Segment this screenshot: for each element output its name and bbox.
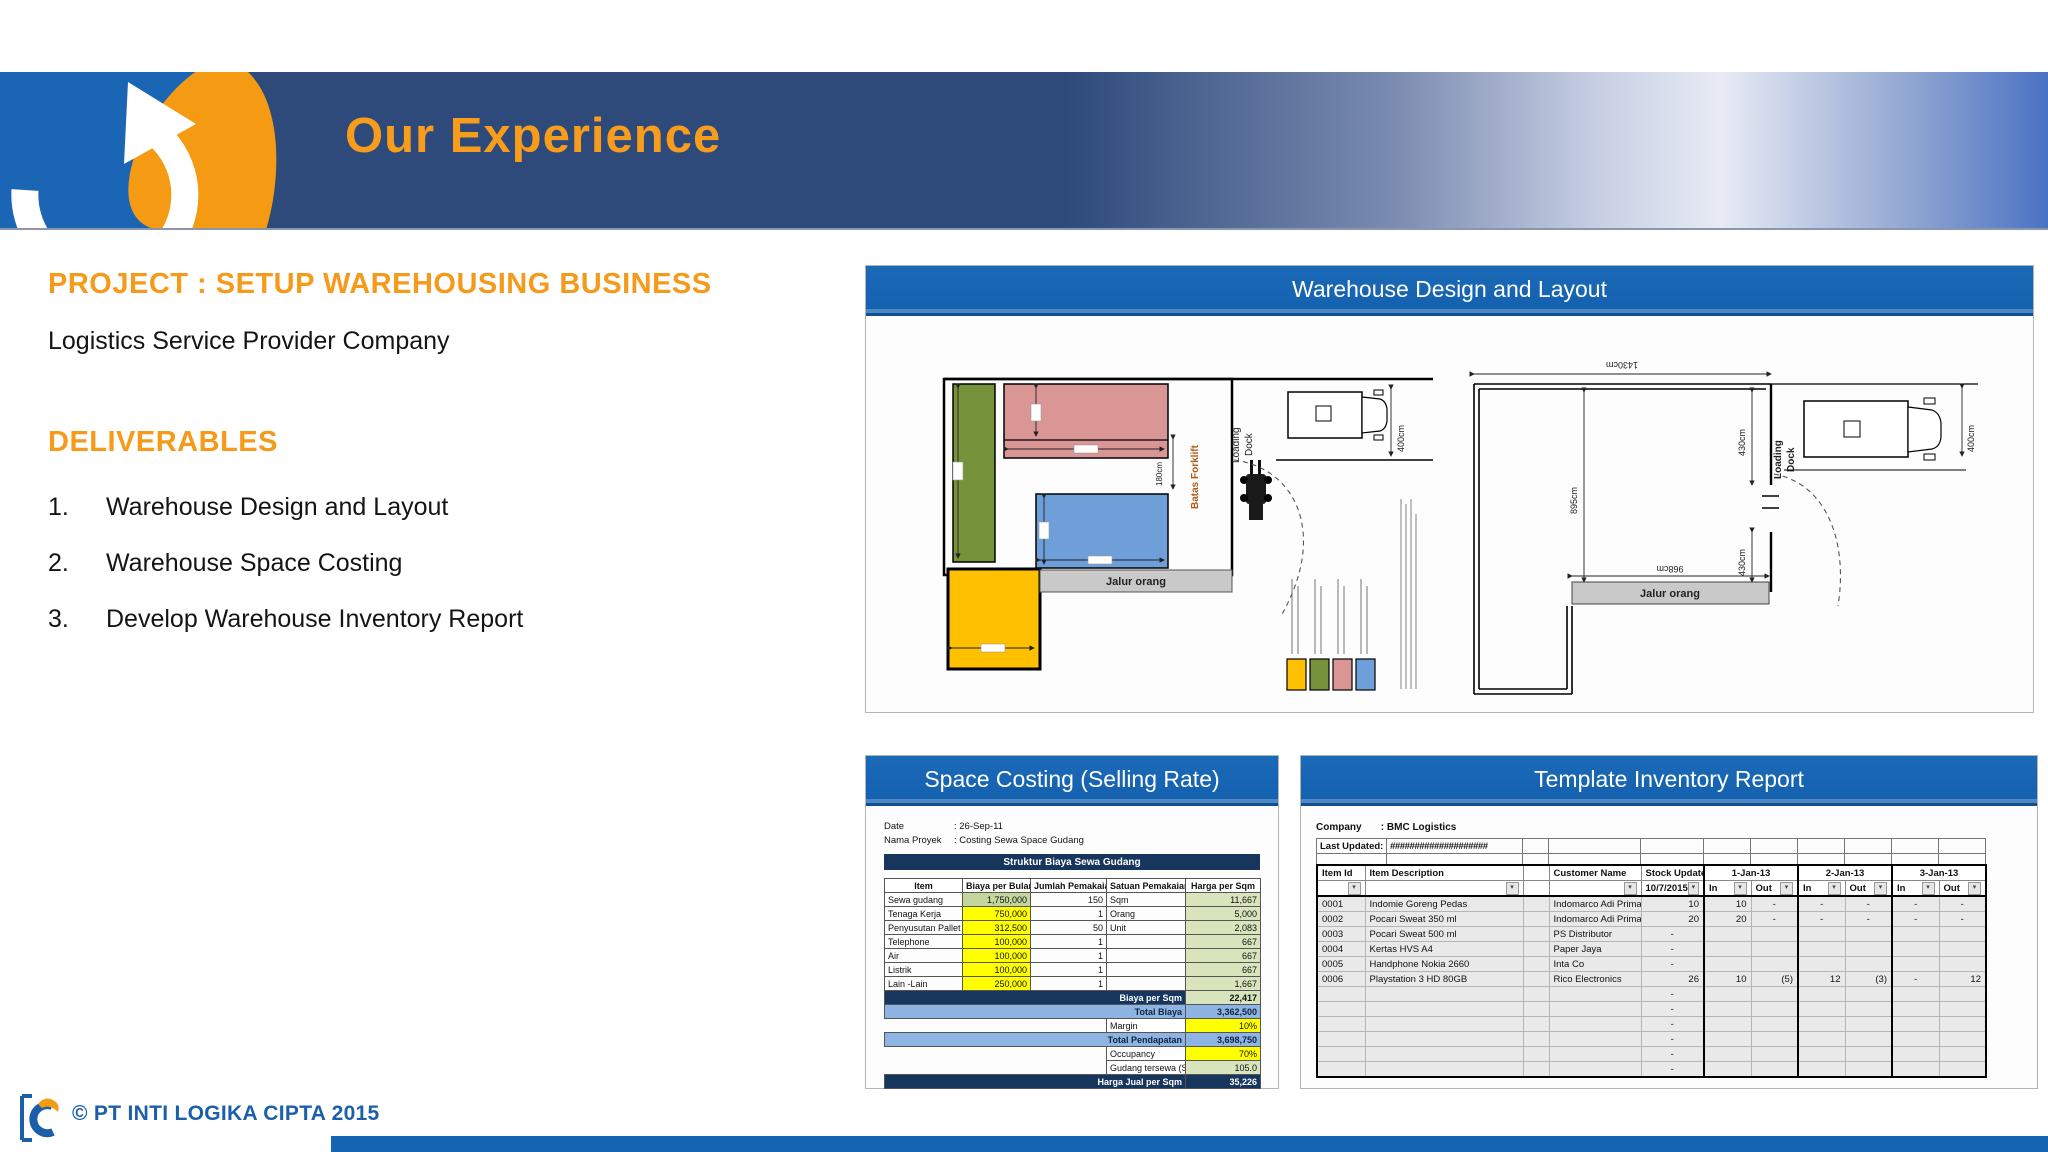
summary-harga-jual: Harga Jual per Sqm 35,226 [885, 1075, 1261, 1089]
inventory-row: 0006 Playstation 3 HD 80GB Rico Electron… [1317, 972, 1986, 987]
date-value: : 26-Sep-11 [954, 821, 1003, 832]
costing-row: Air 100,000 1 667 [885, 949, 1261, 963]
item-id-cell: 0004 [1317, 942, 1365, 957]
d2-in-cell [1798, 1032, 1845, 1047]
company-value: : BMC Logistics [1381, 822, 1457, 833]
d1-out-cell [1751, 1032, 1798, 1047]
item-cell: Penyusutan Pallet [885, 921, 963, 935]
zone-legend [1287, 499, 1416, 690]
d2-out-cell [1845, 1047, 1892, 1062]
costing-table: Item Biaya per Bulan Jumlah Pemakaian Sa… [884, 878, 1261, 1089]
col-date-group-2: 2-Jan-13 [1798, 865, 1892, 881]
d1-out-cell [1751, 1047, 1798, 1062]
customer-cell: PS Distributor [1549, 927, 1641, 942]
item-desc-cell [1365, 1017, 1523, 1032]
customer-cell [1549, 1002, 1641, 1017]
customer-cell: Indomarco Adi Prima [1549, 896, 1641, 912]
jumlah-cell: 1 [1031, 963, 1107, 977]
item-id-cell [1317, 987, 1365, 1002]
d1-in-cell: 20 [1704, 912, 1751, 927]
d3-out-cell [1939, 1062, 1986, 1078]
stock-date-filter: 10/7/2015▾ [1641, 881, 1704, 897]
last-updated-value: #################### [1387, 839, 1523, 854]
costing-meta: Date: 26-Sep-11 Nama Proyek: Costing Sew… [884, 820, 1084, 848]
d2-out-cell [1845, 927, 1892, 942]
deliverable-number: 3. [48, 605, 106, 634]
dock-lower-dim: 430cm [1737, 549, 1747, 576]
out-filter-3: Out▾ [1939, 881, 1986, 897]
d1-in-cell [1704, 957, 1751, 972]
d1-out-cell [1751, 927, 1798, 942]
inventory-company-row: Company : BMC Logistics [1316, 822, 1456, 833]
d2-out-cell: - [1845, 896, 1892, 912]
in-label: In [1803, 883, 1811, 894]
biaya-cell: 312,500 [963, 921, 1031, 935]
d3-out-cell [1939, 1032, 1986, 1047]
item-id-cell: 0002 [1317, 912, 1365, 927]
costing-row: Penyusutan Pallet 312,500 50 Unit 2,083 [885, 921, 1261, 935]
d2-in-cell: 12 [1798, 972, 1845, 987]
d3-in-cell [1892, 1017, 1939, 1032]
spacer-row [1317, 854, 1986, 865]
truck-icon [1804, 398, 1941, 460]
stock-cell: - [1641, 942, 1704, 957]
d2-out-cell [1845, 1032, 1892, 1047]
forklift-clearance-dim: 180cm [1155, 462, 1164, 486]
filter-dropdown-icon[interactable]: ▾ [1348, 882, 1361, 895]
d3-in-cell: - [1892, 896, 1939, 912]
d3-in-cell [1892, 957, 1939, 972]
col-item-description: Item Description [1365, 865, 1523, 881]
jumlah-cell: 50 [1031, 921, 1107, 935]
inventory-row: 0001 Indomie Goreng Pedas Indomarco Adi … [1317, 896, 1986, 912]
d2-in-cell [1798, 942, 1845, 957]
d1-out-cell [1751, 942, 1798, 957]
item-id-cell: 0006 [1317, 972, 1365, 987]
d1-out-cell [1751, 957, 1798, 972]
walkway-label: Jalur orang [1106, 576, 1166, 588]
d1-in-cell: 10 [1704, 896, 1751, 912]
item-id-filter: ▾ [1317, 881, 1365, 897]
in-label: In [1709, 883, 1717, 894]
satuan-cell [1107, 935, 1186, 949]
d2-out-cell: (3) [1845, 972, 1892, 987]
d3-out-cell: - [1939, 912, 1986, 927]
d2-in-cell: - [1798, 912, 1845, 927]
costing-row: Sewa gudang 1,750,000 150 Sqm 11,667 [885, 893, 1261, 907]
dock-upper-dim: 430cm [1737, 429, 1747, 456]
summary-biaya-per-sqm: Biaya per Sqm 22,417 [885, 991, 1261, 1005]
item-desc-filter: ▾ [1365, 881, 1523, 897]
in-filter-3: In▾ [1892, 881, 1939, 897]
item-desc-cell: Indomie Goreng Pedas [1365, 896, 1523, 912]
item-desc-cell [1365, 1062, 1523, 1078]
d3-in-cell [1892, 987, 1939, 1002]
summary-gudang-tersewa: Gudang tersewa (Sqm) 105.0 [885, 1061, 1261, 1075]
stock-cell: - [1641, 1047, 1704, 1062]
zone-yellow [948, 569, 1040, 669]
last-updated-row: Last Updated: #################### [1317, 839, 1986, 854]
loading-dock-label-word2: Dock [1786, 447, 1797, 472]
in-filter-1: In▾ [1704, 881, 1751, 897]
d1-out-cell [1751, 987, 1798, 1002]
item-id-cell [1317, 1002, 1365, 1017]
inventory-row: - [1317, 1062, 1986, 1078]
customer-cell [1549, 1032, 1641, 1047]
item-desc-cell: Kertas HVS A4 [1365, 942, 1523, 957]
costing-header-row: Item Biaya per Bulan Jumlah Pemakaian Sa… [885, 879, 1261, 893]
col-jumlah: Jumlah Pemakaian [1031, 879, 1107, 893]
inventory-report-panel: Template Inventory Report Company : BMC … [1300, 755, 2038, 1089]
d3-out-cell: 12 [1939, 972, 1986, 987]
satuan-cell: Orang [1107, 907, 1186, 921]
d3-out-cell [1939, 942, 1986, 957]
filter-dropdown-icon[interactable]: ▾ [1734, 882, 1747, 895]
harga-cell: 5,000 [1186, 907, 1261, 921]
satuan-cell [1107, 977, 1186, 991]
inventory-row: 0004 Kertas HVS A4 Paper Jaya - [1317, 942, 1986, 957]
d1-in-cell [1704, 987, 1751, 1002]
intro-block: PROJECT : SETUP WAREHOUSING BUSINESS Log… [48, 268, 848, 634]
costing-row: Telephone 100,000 1 667 [885, 935, 1261, 949]
col-satuan: Satuan Pemakaian [1107, 879, 1186, 893]
customer-cell: Rico Electronics [1549, 972, 1641, 987]
d3-in-cell [1892, 1062, 1939, 1078]
truck-icon [1288, 390, 1387, 440]
in-label: In [1897, 883, 1905, 894]
d1-in-cell: 10 [1704, 972, 1751, 987]
d1-out-cell: - [1751, 912, 1798, 927]
satuan-cell [1107, 949, 1186, 963]
costing-section-header: Struktur Biaya Sewa Gudang [884, 854, 1260, 870]
truck-bay-dim: 400cm [1966, 425, 1976, 452]
inventory-row: - [1317, 1002, 1986, 1017]
out-label: Out [1944, 883, 1960, 894]
d2-in-cell [1798, 987, 1845, 1002]
filter-dropdown-icon[interactable]: ▾ [1780, 882, 1793, 895]
filter-dropdown-icon[interactable]: ▾ [1828, 882, 1841, 895]
d2-in-cell [1798, 1047, 1845, 1062]
jumlah-cell: 1 [1031, 935, 1107, 949]
summary-total-pendapatan: Total Pendapatan 3,698,750 [885, 1033, 1261, 1047]
d3-out-cell: - [1939, 896, 1986, 912]
item-id-cell [1317, 1017, 1365, 1032]
d1-out-cell: - [1751, 896, 1798, 912]
d3-in-cell [1892, 927, 1939, 942]
col-harga: Harga per Sqm [1186, 879, 1261, 893]
d2-in-cell: - [1798, 896, 1845, 912]
d2-in-cell [1798, 1002, 1845, 1017]
legend-swatch-yellow [1287, 659, 1306, 690]
company-subtitle: Logistics Service Provider Company [48, 327, 848, 356]
deliverable-text: Warehouse Design and Layout [106, 493, 848, 522]
satuan-cell [1107, 963, 1186, 977]
harga-cell: 667 [1186, 963, 1261, 977]
room-height-dim: 895cm [1569, 487, 1579, 514]
project-name-value: : Costing Sewa Space Gudang [954, 835, 1084, 846]
floor-plan-with-zones: Jalur orang Batas Forklift 180cm Loading… [936, 364, 1441, 700]
stock-cell: - [1641, 957, 1704, 972]
filter-dropdown-icon[interactable]: ▾ [1968, 882, 1981, 895]
item-id-cell [1317, 1062, 1365, 1078]
inventory-row: 0003 Pocari Sweat 500 ml PS Distributor … [1317, 927, 1986, 942]
slide-title: Our Experience [345, 108, 721, 164]
jumlah-cell: 1 [1031, 977, 1107, 991]
item-cell: Sewa gudang [885, 893, 963, 907]
out-label: Out [1850, 883, 1866, 894]
forklift-limit-label: Batas Forklift [1190, 444, 1201, 509]
costing-row: Tenaga Kerja 750,000 1 Orang 5,000 [885, 907, 1261, 921]
footer-logo [18, 1092, 66, 1144]
item-id-cell [1317, 1032, 1365, 1047]
last-updated-label: Last Updated: [1317, 839, 1387, 854]
biaya-cell: 100,000 [963, 963, 1031, 977]
item-id-cell: 0005 [1317, 957, 1365, 972]
col-date-group-1: 1-Jan-13 [1704, 865, 1798, 881]
inventory-row: 0002 Pocari Sweat 350 ml Indomarco Adi P… [1317, 912, 1986, 927]
d1-in-cell [1704, 1062, 1751, 1078]
d1-in-cell [1704, 1002, 1751, 1017]
stock-cell: - [1641, 1062, 1704, 1078]
harga-cell: 667 [1186, 949, 1261, 963]
space-costing-panel-title: Space Costing (Selling Rate) [866, 756, 1278, 806]
col-customer-name: Customer Name [1549, 865, 1641, 881]
d2-out-cell [1845, 957, 1892, 972]
d2-out-cell [1845, 1017, 1892, 1032]
walkway-width-dim: 968cm [1656, 564, 1683, 574]
jumlah-cell: 1 [1031, 949, 1107, 963]
harga-cell: 2,083 [1186, 921, 1261, 935]
filter-dropdown-icon[interactable]: ▾ [1922, 882, 1935, 895]
customer-cell [1549, 1017, 1641, 1032]
item-cell: Lain -Lain [885, 977, 963, 991]
door-swing-arc [1774, 474, 1840, 606]
loading-dock-label-word1: Loading [1231, 427, 1242, 463]
d1-out-cell [1751, 1002, 1798, 1017]
biaya-cell: 1,750,000 [963, 893, 1031, 907]
item-cell: Telephone [885, 935, 963, 949]
inventory-header-row: Item Id Item Description Customer Name S… [1317, 865, 1986, 881]
d3-in-cell [1892, 1047, 1939, 1062]
d2-in-cell [1798, 1017, 1845, 1032]
col-stock-update: Stock Update [1641, 865, 1704, 881]
d3-out-cell [1939, 1017, 1986, 1032]
inventory-row: - [1317, 1047, 1986, 1062]
biaya-cell: 100,000 [963, 935, 1031, 949]
item-desc-cell: Playstation 3 HD 80GB [1365, 972, 1523, 987]
d1-out-cell [1751, 1062, 1798, 1078]
out-filter-1: Out▾ [1751, 881, 1798, 897]
d3-out-cell [1939, 927, 1986, 942]
d3-in-cell [1892, 1002, 1939, 1017]
date-label: Date [884, 820, 954, 834]
item-desc-cell [1365, 1002, 1523, 1017]
item-cell: Tenaga Kerja [885, 907, 963, 921]
deliverables-list: 1. Warehouse Design and Layout 2. Wareho… [48, 493, 848, 634]
satuan-cell: Unit [1107, 921, 1186, 935]
forklift-icon [1240, 460, 1272, 520]
loading-dock-label-word1: Loading [1773, 440, 1784, 479]
inventory-row: - [1317, 1017, 1986, 1032]
warehouse-layout-panel-title: Warehouse Design and Layout [866, 266, 2033, 316]
item-desc-cell [1365, 1032, 1523, 1047]
item-desc-cell: Pocari Sweat 350 ml [1365, 912, 1523, 927]
out-label: Out [1756, 883, 1772, 894]
customer-cell: Inta Co [1549, 957, 1641, 972]
summary-occupancy: Occupancy 70% [885, 1047, 1261, 1061]
item-desc-cell [1365, 987, 1523, 1002]
loading-dock-label-word2: Dock [1244, 432, 1255, 456]
d3-out-cell [1939, 1047, 1986, 1062]
item-id-cell [1317, 1047, 1365, 1062]
customer-cell [1549, 1047, 1641, 1062]
costing-row: Listrik 100,000 1 667 [885, 963, 1261, 977]
customer-cell: Paper Jaya [1549, 942, 1641, 957]
inventory-report-panel-title: Template Inventory Report [1301, 756, 2037, 806]
filter-dropdown-icon[interactable]: ▾ [1506, 882, 1519, 895]
satuan-cell: Sqm [1107, 893, 1186, 907]
summary-total-biaya: Total Biaya 3,362,500 [885, 1005, 1261, 1019]
d2-out-cell: - [1845, 912, 1892, 927]
jumlah-cell: 1 [1031, 907, 1107, 921]
harga-cell: 11,667 [1186, 893, 1261, 907]
harga-cell: 667 [1186, 935, 1261, 949]
customer-cell [1549, 987, 1641, 1002]
footer-accent-bar [331, 1136, 2048, 1152]
warehouse-layout-panel: Warehouse Design and Layout [865, 265, 2034, 713]
filter-dropdown-icon[interactable]: ▾ [1688, 882, 1699, 895]
filter-dropdown-icon[interactable]: ▾ [1874, 882, 1887, 895]
d3-out-cell [1939, 957, 1986, 972]
col-biaya: Biaya per Bulan [963, 879, 1031, 893]
col-item-id: Item Id [1317, 865, 1365, 881]
out-filter-2: Out▾ [1845, 881, 1892, 897]
item-desc-cell: Pocari Sweat 500 ml [1365, 927, 1523, 942]
customer-cell [1549, 1062, 1641, 1078]
customer-cell: Indomarco Adi Prima [1549, 912, 1641, 927]
in-filter-2: In▾ [1798, 881, 1845, 897]
header-band: Our Experience [0, 72, 2048, 230]
inventory-row: - [1317, 987, 1986, 1002]
d1-in-cell [1704, 927, 1751, 942]
item-desc-cell: Handphone Nokia 2660 [1365, 957, 1523, 972]
d1-in-cell [1704, 1047, 1751, 1062]
d3-out-cell [1939, 1002, 1986, 1017]
last-updated-table: Last Updated: #################### [1316, 838, 1986, 865]
floor-plan-dimensions: 1430cm 895cm 430cm 430cm 968cm Ja [1466, 344, 2021, 706]
stock-cell: 20 [1641, 912, 1704, 927]
deliverable-text: Develop Warehouse Inventory Report [106, 605, 848, 634]
item-cell: Listrik [885, 963, 963, 977]
overall-width-dim: 1430cm [1606, 360, 1638, 370]
biaya-cell: 250,000 [963, 977, 1031, 991]
biaya-cell: 100,000 [963, 949, 1031, 963]
space-costing-panel: Space Costing (Selling Rate) Date: 26-Se… [865, 755, 1279, 1089]
summary-margin: Margin 10% [885, 1019, 1261, 1033]
d2-out-cell [1845, 1062, 1892, 1078]
costing-row: Lain -Lain 250,000 1 1,667 [885, 977, 1261, 991]
inventory-row: 0005 Handphone Nokia 2660 Inta Co - [1317, 957, 1986, 972]
d3-in-cell [1892, 942, 1939, 957]
d2-out-cell [1845, 1002, 1892, 1017]
d3-in-cell: - [1892, 912, 1939, 927]
legend-swatch-green [1310, 659, 1329, 690]
deliverable-number: 1. [48, 493, 106, 522]
legend-swatch-pink [1333, 659, 1352, 690]
d2-in-cell [1798, 957, 1845, 972]
d2-out-cell [1845, 987, 1892, 1002]
company-label: Company [1316, 822, 1378, 833]
d1-out-cell: (5) [1751, 972, 1798, 987]
item-id-cell: 0003 [1317, 927, 1365, 942]
filter-dropdown-icon[interactable]: ▾ [1624, 882, 1637, 895]
d2-in-cell [1798, 1062, 1845, 1078]
stock-date: 10/7/2015 [1646, 883, 1688, 894]
walkway-label: Jalur orang [1640, 588, 1700, 600]
col-item: Item [885, 879, 963, 893]
stock-cell: - [1641, 927, 1704, 942]
customer-filter: ▾ [1549, 881, 1641, 897]
d1-in-cell [1704, 1032, 1751, 1047]
harga-cell: 1,667 [1186, 977, 1261, 991]
stock-cell: - [1641, 1032, 1704, 1047]
truck-bay-dim: 400cm [1396, 425, 1406, 452]
col-date-group-3: 3-Jan-13 [1892, 865, 1986, 881]
item-id-cell: 0001 [1317, 896, 1365, 912]
d3-in-cell [1892, 1032, 1939, 1047]
company-swoosh-logo [0, 72, 360, 228]
d2-out-cell [1845, 942, 1892, 957]
inventory-table: Item Id Item Description Customer Name S… [1316, 864, 1987, 1078]
deliverables-heading: DELIVERABLES [48, 426, 848, 459]
deliverable-text: Warehouse Space Costing [106, 549, 848, 578]
copyright-text: © PT INTI LOGIKA CIPTA 2015 [72, 1102, 380, 1126]
legend-swatch-blue [1356, 659, 1375, 690]
inventory-filter-row: ▾ ▾ ▾ 10/7/2015▾ In▾ Out▾ In▾ Out▾ In▾ O… [1317, 881, 1986, 897]
stock-cell: - [1641, 1017, 1704, 1032]
deliverable-number: 2. [48, 549, 106, 578]
item-desc-cell [1365, 1047, 1523, 1062]
d3-out-cell [1939, 987, 1986, 1002]
project-title: PROJECT : SETUP WAREHOUSING BUSINESS [48, 268, 848, 301]
d1-in-cell [1704, 1017, 1751, 1032]
biaya-cell: 750,000 [963, 907, 1031, 921]
jumlah-cell: 150 [1031, 893, 1107, 907]
stock-cell: - [1641, 1002, 1704, 1017]
d1-in-cell [1704, 942, 1751, 957]
d2-in-cell [1798, 927, 1845, 942]
stock-cell: 26 [1641, 972, 1704, 987]
item-cell: Air [885, 949, 963, 963]
d3-in-cell: - [1892, 972, 1939, 987]
stock-cell: - [1641, 987, 1704, 1002]
stock-cell: 10 [1641, 896, 1704, 912]
inventory-row: - [1317, 1032, 1986, 1047]
d1-out-cell [1751, 1017, 1798, 1032]
project-name-label: Nama Proyek [884, 834, 954, 848]
